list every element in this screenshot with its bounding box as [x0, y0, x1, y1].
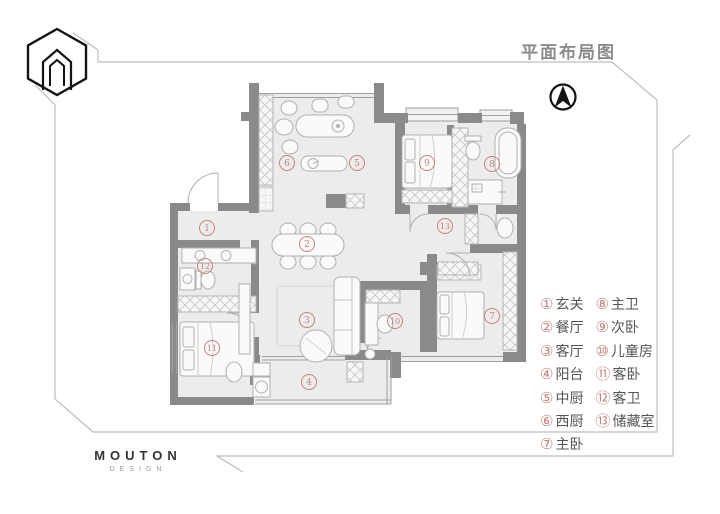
legend-item: ⑬储藏室 [595, 410, 654, 433]
svg-text:12: 12 [200, 262, 210, 271]
brand-wordmark: MOUTON DESIGN [88, 448, 188, 473]
legend-item: ⑦主卧 [540, 433, 583, 456]
legend-item: ④阳台 [540, 363, 583, 386]
floor-plan: 1 2 3 4 5 6 7 8 9 10 11 12 13 [170, 83, 526, 405]
svg-text:13: 13 [440, 222, 450, 231]
legend-item: ②餐厅 [540, 316, 583, 339]
page-title: 平面布局图 [521, 38, 621, 63]
north-arrow-icon [551, 85, 576, 110]
legend-column-1: ①玄关 ②餐厅 ③客厅 ④阳台 ⑤中厨 ⑥西厨 ⑦主卧 [540, 293, 583, 457]
svg-text:10: 10 [390, 317, 400, 326]
legend-item: ⑪客卧 [595, 363, 654, 386]
svg-text:1: 1 [204, 224, 210, 234]
svg-text:7: 7 [489, 312, 495, 322]
legend-item: ①玄关 [540, 293, 583, 316]
svg-text:11: 11 [207, 344, 217, 353]
brand-logo-cube-icon [28, 29, 86, 95]
svg-text:4: 4 [306, 378, 312, 388]
svg-text:5: 5 [354, 159, 360, 169]
kitchen-counter [301, 156, 347, 171]
svg-text:8: 8 [489, 160, 495, 170]
svg-text:6: 6 [284, 159, 290, 169]
legend-item: ⑫客卫 [595, 387, 654, 410]
legend-item: ⑤中厨 [540, 387, 583, 410]
brand-tagline: DESIGN [88, 466, 188, 473]
page: 1 2 3 4 5 6 7 8 9 10 11 12 13 平面布局图 ①玄关 … [0, 0, 720, 514]
legend: ①玄关 ②餐厅 ③客厅 ④阳台 ⑤中厨 ⑥西厨 ⑦主卧 ⑧主卫 ⑨次卧 ⑩儿童房… [540, 293, 654, 457]
brand-name: MOUTON [88, 448, 188, 463]
balcony-fixtures [253, 363, 270, 397]
legend-item: ⑥西厨 [540, 410, 583, 433]
legend-column-2: ⑧主卫 ⑨次卧 ⑩儿童房 ⑪客卧 ⑫客卫 ⑬储藏室 [595, 293, 654, 457]
legend-item: ⑨次卧 [595, 316, 654, 339]
legend-item: ⑧主卫 [595, 293, 654, 316]
svg-text:9: 9 [424, 159, 430, 169]
master-bed [437, 292, 484, 339]
svg-text:2: 2 [304, 240, 310, 250]
legend-item: ③客厅 [540, 340, 583, 363]
legend-item: ⑩儿童房 [595, 340, 654, 363]
svg-text:3: 3 [304, 316, 310, 326]
